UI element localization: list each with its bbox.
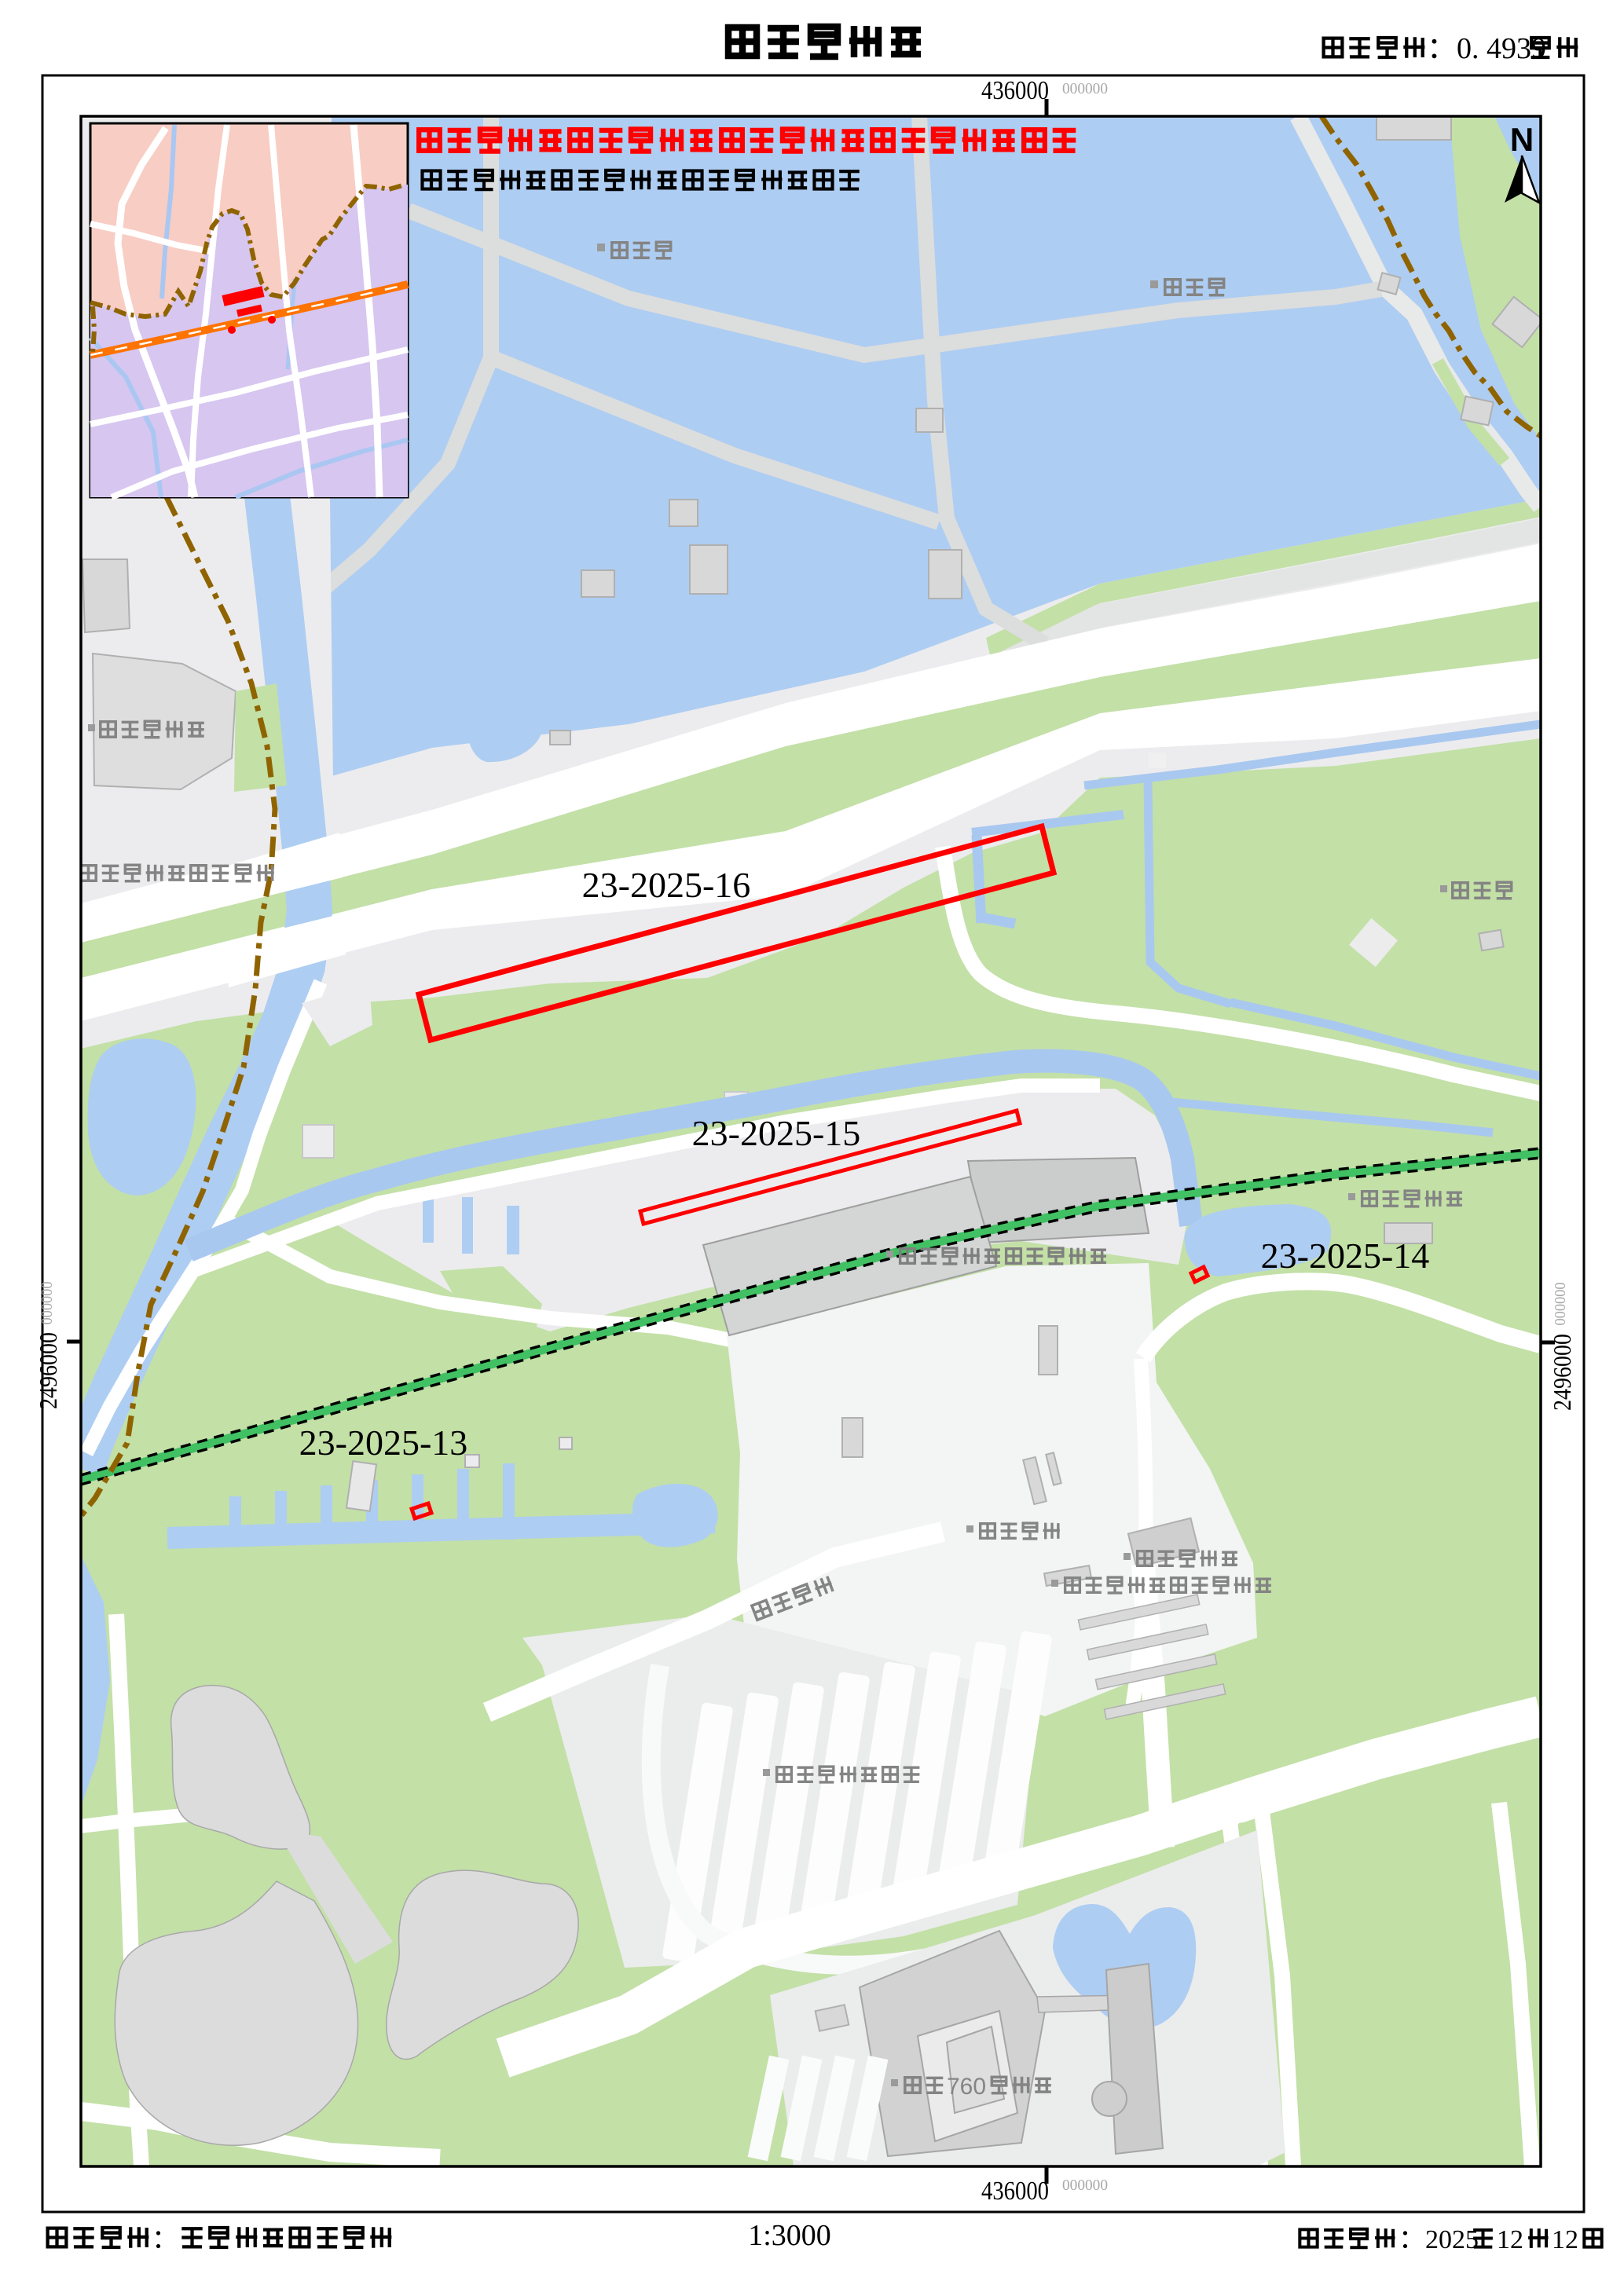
svg-text:000000: 000000 — [1062, 80, 1108, 97]
svg-text:23-2025-14: 23-2025-14 — [1261, 1236, 1430, 1276]
svg-text:1:3000: 1:3000 — [748, 2219, 831, 2252]
svg-text:：0. 4939: ：0. 4939 — [1427, 32, 1546, 65]
svg-text:436000: 436000 — [981, 2177, 1049, 2206]
svg-text:12: 12 — [1497, 2225, 1523, 2254]
svg-text:760: 760 — [947, 2074, 986, 2100]
svg-text:：2025: ：2025 — [1399, 2225, 1479, 2254]
svg-text:12: 12 — [1552, 2225, 1578, 2254]
svg-text:2496000: 2496000 — [1548, 1334, 1576, 1411]
svg-text:2496000: 2496000 — [34, 1332, 62, 1409]
svg-text:436000: 436000 — [981, 76, 1049, 105]
svg-text:23-2025-15: 23-2025-15 — [692, 1113, 861, 1153]
svg-text:000000: 000000 — [1552, 1283, 1569, 1326]
svg-text:000000: 000000 — [1062, 2177, 1108, 2194]
svg-text:N: N — [1510, 121, 1534, 158]
svg-text:：: ： — [152, 2225, 178, 2254]
svg-text:23-2025-16: 23-2025-16 — [582, 865, 751, 905]
svg-text:23-2025-13: 23-2025-13 — [299, 1423, 468, 1463]
svg-text:000000: 000000 — [38, 1282, 56, 1325]
